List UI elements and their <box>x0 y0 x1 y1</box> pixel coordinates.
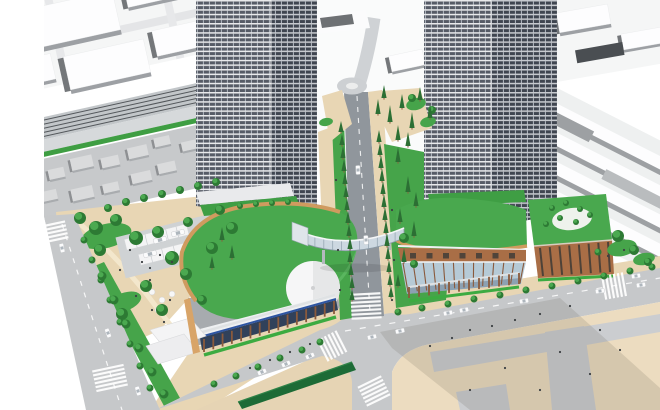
rendering-stage: Computer-generated aerial rendering of a… <box>0 0 660 410</box>
pedestrian <box>429 345 431 347</box>
conifer-trunk <box>408 192 409 194</box>
conifer-trunk <box>381 168 382 170</box>
wood-column <box>518 273 520 284</box>
tree-highlight <box>148 368 153 373</box>
tree-highlight <box>577 206 581 210</box>
pedestrian <box>159 254 161 256</box>
tree-highlight <box>160 390 165 395</box>
brick-window <box>443 253 449 259</box>
wood-column <box>498 276 500 287</box>
tree-highlight <box>445 301 449 305</box>
pedestrian <box>119 269 121 271</box>
wood-column <box>250 325 252 338</box>
conifer-trunk <box>390 285 391 287</box>
conifer-trunk <box>350 262 351 264</box>
tree-highlight <box>573 219 577 223</box>
tree-highlight <box>497 292 501 296</box>
aerial-rendering <box>0 0 660 410</box>
tree-highlight <box>630 246 636 252</box>
tree-highlight <box>471 296 475 300</box>
tree-highlight <box>587 212 591 216</box>
tree-highlight <box>198 296 204 302</box>
conifer-trunk <box>398 286 399 288</box>
conifer-trunk <box>342 145 343 147</box>
conifer-trunk <box>341 132 342 134</box>
tree-highlight <box>233 373 237 377</box>
tree-highlight <box>166 252 174 260</box>
wood-column <box>296 312 298 325</box>
car-glass <box>356 168 359 171</box>
tree-highlight <box>255 364 259 368</box>
conifer-trunk <box>383 194 384 196</box>
tree-highlight <box>419 305 423 309</box>
tree-highlight <box>211 381 215 385</box>
tree-highlight <box>411 260 416 265</box>
conifer-trunk <box>222 240 223 242</box>
conifer-trunk <box>389 272 390 274</box>
tent-peak <box>311 286 315 290</box>
car-glass <box>60 246 64 250</box>
wood-column <box>324 304 326 317</box>
tree-highlight <box>157 305 164 312</box>
pedestrian <box>337 249 339 251</box>
wood-column <box>259 323 261 336</box>
conifer-trunk <box>382 181 383 183</box>
tree-highlight <box>130 232 138 240</box>
conifer-trunk <box>420 100 421 102</box>
pedestrian <box>149 279 151 281</box>
car <box>364 235 369 244</box>
brick-window <box>493 253 499 259</box>
tree-highlight <box>98 272 103 277</box>
tree-highlight <box>127 341 131 345</box>
conifer-trunk <box>412 128 413 130</box>
tree-highlight <box>557 215 561 219</box>
pedestrian <box>269 359 271 361</box>
pedestrian <box>504 367 506 369</box>
car-glass <box>598 289 601 292</box>
pedestrian <box>163 321 165 323</box>
pedestrian <box>249 367 251 369</box>
brick-window <box>509 253 515 259</box>
conifer-trunk <box>384 207 385 209</box>
pedestrian <box>391 299 393 301</box>
tree-highlight <box>595 249 599 253</box>
pedestrian <box>451 337 453 339</box>
conifer-trunk <box>380 155 381 157</box>
pedestrian <box>149 267 151 269</box>
tree-highlight <box>184 218 190 224</box>
tree-highlight <box>110 296 115 301</box>
bridge-shadow <box>320 264 392 273</box>
tree-highlight <box>645 258 650 263</box>
tree-highlight <box>75 213 82 220</box>
conifer-trunk <box>416 206 417 208</box>
tree-highlight <box>141 194 146 199</box>
tree-highlight <box>90 222 98 230</box>
car-glass <box>634 274 637 277</box>
car-glass <box>522 299 525 302</box>
conifer-trunk <box>386 233 387 235</box>
tree-highlight <box>122 320 127 325</box>
tree-highlight <box>613 231 620 238</box>
tree-highlight <box>123 198 128 203</box>
conifer-trunk <box>402 108 403 110</box>
car-glass <box>398 329 402 333</box>
conifer-trunk <box>384 98 385 100</box>
wood-column <box>408 287 410 298</box>
tree-highlight <box>549 205 553 209</box>
wood-column <box>418 286 420 297</box>
conifer-trunk <box>348 223 349 225</box>
wood-column <box>231 331 233 344</box>
tree-highlight <box>105 204 110 209</box>
pedestrian <box>171 261 173 263</box>
tree-highlight <box>153 227 160 234</box>
pedestrian <box>599 329 601 331</box>
tree-highlight <box>181 269 188 276</box>
wood-column <box>305 309 307 322</box>
conifer-trunk <box>391 297 392 299</box>
conifer-trunk <box>212 268 213 270</box>
wood-column <box>438 283 440 294</box>
conifer-trunk <box>408 146 409 148</box>
tree-highlight <box>395 309 399 313</box>
car-glass <box>639 283 642 286</box>
tree-highlight <box>207 243 214 250</box>
tree-highlight <box>277 355 281 359</box>
wood-column <box>488 277 490 288</box>
conifer-trunk <box>398 140 399 142</box>
conifer-trunk <box>388 259 389 261</box>
roundabout-island <box>346 83 358 89</box>
tree-highlight <box>285 199 289 203</box>
pedestrian <box>151 309 153 311</box>
pedestrian <box>135 295 137 297</box>
tree-highlight <box>147 385 151 389</box>
conifer-trunk <box>385 220 386 222</box>
pedestrian <box>491 325 493 327</box>
tree-highlight <box>269 200 273 204</box>
bridge-pier <box>322 250 325 264</box>
tree-highlight <box>195 182 200 187</box>
tree-highlight <box>575 278 579 282</box>
wood-column <box>212 336 214 349</box>
conifer-trunk <box>430 118 431 120</box>
conifer-trunk <box>351 275 352 277</box>
pedestrian <box>309 343 311 345</box>
wood-column <box>478 278 480 289</box>
wood-column <box>315 306 317 319</box>
conifer-trunk <box>232 258 233 260</box>
tree-highlight <box>400 234 406 240</box>
conifer-trunk <box>390 122 391 124</box>
brick-window <box>410 253 416 259</box>
tree-highlight <box>141 281 148 288</box>
pedestrian <box>129 249 131 251</box>
pedestrian <box>559 351 561 353</box>
tree-highlight <box>543 221 547 225</box>
brick-window <box>460 253 466 259</box>
wood-column <box>277 317 279 330</box>
wood-column <box>287 315 289 328</box>
tree-highlight <box>117 309 124 316</box>
pedestrian <box>335 179 337 181</box>
conifer-trunk <box>344 171 345 173</box>
pedestrian <box>569 305 571 307</box>
tree-highlight <box>253 201 257 205</box>
pedestrian <box>391 209 393 211</box>
umbrella <box>169 291 175 297</box>
wood-column <box>333 301 335 314</box>
pedestrian <box>169 299 171 301</box>
pedestrian <box>539 313 541 315</box>
pedestrian <box>469 389 471 391</box>
conifer-trunk <box>346 197 347 199</box>
tree-highlight <box>95 245 102 252</box>
tree-highlight <box>409 94 414 99</box>
pedestrian <box>393 259 395 261</box>
umbrella <box>159 297 165 303</box>
car-glass <box>462 308 465 311</box>
pedestrian <box>589 373 591 375</box>
car-glass <box>446 311 449 314</box>
conifer-trunk <box>343 158 344 160</box>
tree-highlight <box>227 223 234 230</box>
tree-highlight <box>601 273 605 277</box>
tree-highlight <box>81 237 85 241</box>
tree-highlight <box>117 319 121 323</box>
tree-highlight <box>299 347 303 351</box>
conifer-trunk <box>414 236 415 238</box>
car <box>356 165 361 174</box>
tree-highlight <box>135 344 140 349</box>
wood-column <box>428 284 430 295</box>
brick-window <box>476 253 482 259</box>
conifer-trunk <box>352 300 353 302</box>
car-glass <box>364 238 367 241</box>
pedestrian <box>514 319 516 321</box>
wood-column <box>468 279 470 290</box>
conifer-trunk <box>378 114 379 116</box>
pedestrian <box>619 349 621 351</box>
pedestrian <box>623 249 625 251</box>
tree-highlight <box>523 287 527 291</box>
tree-highlight <box>213 178 218 183</box>
tree-highlight <box>237 203 241 207</box>
tree-highlight <box>317 339 321 343</box>
tree-highlight <box>563 200 567 204</box>
conifer-trunk <box>379 142 380 144</box>
conifer-trunk <box>404 262 405 264</box>
conifer-trunk <box>345 184 346 186</box>
wood-column <box>458 281 460 292</box>
tree-highlight <box>627 268 631 272</box>
pedestrian <box>141 261 143 263</box>
wood-column <box>203 339 205 352</box>
conifer-trunk <box>387 246 388 248</box>
left-tower-face-sw <box>196 0 271 216</box>
tree-highlight <box>111 215 118 222</box>
tree-highlight <box>216 206 222 212</box>
tree-highlight <box>177 186 182 191</box>
tree-highlight <box>549 283 553 287</box>
wood-column <box>268 320 270 333</box>
wood-column <box>448 282 450 293</box>
pedestrian <box>469 329 471 331</box>
car-glass <box>370 335 374 339</box>
brick-window <box>427 253 433 259</box>
pedestrian <box>289 351 291 353</box>
wood-column <box>222 334 224 347</box>
wood-column <box>508 274 510 285</box>
pedestrian <box>607 255 609 257</box>
wood-column <box>240 328 242 341</box>
conifer-trunk <box>398 162 399 164</box>
tree-highlight <box>89 257 93 261</box>
glass-mullion <box>464 263 465 288</box>
conifer-trunk <box>400 222 401 224</box>
pedestrian <box>539 389 541 391</box>
tree-highlight <box>159 190 164 195</box>
conifer-trunk <box>349 236 350 238</box>
pedestrian <box>339 289 341 291</box>
conifer-trunk <box>347 210 348 212</box>
tree-highlight <box>137 363 141 367</box>
